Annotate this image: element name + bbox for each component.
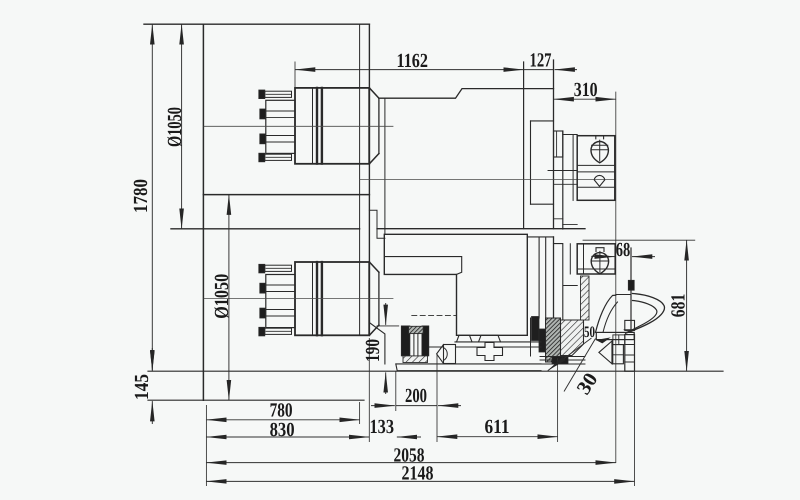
- svg-text:1162: 1162: [397, 50, 429, 72]
- svg-text:2148: 2148: [402, 463, 434, 485]
- svg-text:Ø1050: Ø1050: [164, 107, 186, 147]
- svg-text:133: 133: [370, 416, 395, 438]
- svg-text:830: 830: [270, 419, 295, 441]
- svg-text:611: 611: [485, 416, 510, 438]
- svg-text:190: 190: [362, 339, 384, 362]
- svg-text:310: 310: [574, 79, 598, 101]
- svg-text:1780: 1780: [130, 179, 152, 213]
- svg-text:Ø1050: Ø1050: [211, 274, 233, 319]
- svg-text:68: 68: [616, 239, 631, 261]
- svg-text:681: 681: [668, 294, 690, 318]
- svg-text:200: 200: [405, 385, 427, 407]
- svg-text:127: 127: [530, 50, 552, 72]
- svg-text:145: 145: [131, 374, 153, 400]
- svg-text:50: 50: [584, 324, 595, 341]
